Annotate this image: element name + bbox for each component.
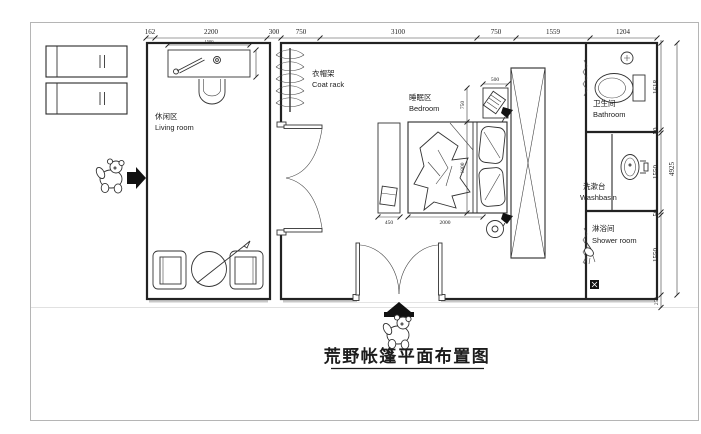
entrance-double-door [353,243,445,302]
bed-width-dim: 1800 [460,162,466,173]
door-leaf [284,229,322,233]
dim-label: 1559 [546,28,561,36]
desk-dim: 1500 [205,39,215,44]
living-room-label-zh: 休闲区 [155,111,178,121]
floor-plan-canvas: 1500 休闲区 Living room 衣帽 [0,0,701,434]
shower-label-zh: 淋浴间 [592,223,615,233]
dim-label: 1550 [652,165,660,180]
dim-label: 1550 [652,248,660,263]
door-leaf [284,125,322,129]
shower-room: 淋浴间 Shower room [583,223,637,289]
bathroom-label-en: Bathroom [593,110,626,119]
entrance-arrow-icon [127,167,146,189]
bed-length-dim: 2000 [440,220,451,226]
dim-label: 2200 [204,28,219,36]
north-arrow-icon [387,302,411,312]
pen-icon [244,241,250,248]
dim-label: 750 [491,28,502,36]
washbasin-label-en: Washbasin [580,193,617,202]
bathroom: 卫生间 Bathroom [593,52,645,119]
bear-mascot-icon [382,315,412,349]
outdoor-loungers [46,46,127,114]
door-swing-arc [360,245,399,294]
rack-dim: 500 [491,77,500,83]
dim-label: 50 [652,127,660,135]
ceiling-lamp-icon [487,221,504,238]
dim-label: 162 [145,28,156,36]
wardrobe-cross-box [511,68,545,258]
dim-label: 1204 [616,28,631,36]
washbasin-area: 洗漱台 Washbasin [580,155,648,203]
dim-label: 3100 [391,28,406,36]
door-leaf [356,243,360,295]
faucet-icon [644,163,648,171]
bench-dim: 450 [385,220,394,226]
washbasin-label-zh: 洗漱台 [583,181,606,191]
drawing-title: 荒野帐篷平面布置图 [323,346,491,366]
shower-label-en: Shower room [592,236,637,245]
door-leaf [439,243,443,295]
door-swing-arc [286,129,322,178]
side-entrance-marker [95,159,146,193]
toilet-tank [633,75,645,101]
title-block: 荒野帐篷平面布置图 [323,302,491,369]
bear-mascot-icon [95,159,125,193]
bedroom-label-en: Bedroom [409,104,439,113]
interior-double-door [276,122,322,235]
lounger [46,83,127,114]
dim-label: 750 [296,28,307,36]
door-swing-arc [286,178,322,228]
living-room: 1500 休闲区 Living room [153,39,263,289]
dim-label: 1618 [652,80,660,95]
desk-chair [199,79,225,104]
bedroom: 睡眠区 Bedroom [376,68,546,258]
bedroom-label-zh: 睡眠区 [409,93,432,102]
dim-label: 50 [652,209,660,217]
dim-label: 250 [654,297,660,306]
bathroom-label-zh: 卫生间 [593,98,616,108]
coat-rack-label-zh: 衣帽架 [312,68,335,78]
coat-rack-label-en: Coat rack [312,80,344,89]
door-swing-arc [399,245,438,294]
top-dimension-line: 162 2200 300 750 3100 750 1559 1204 [144,28,660,41]
bed-head-row-dim: 750 [460,101,466,110]
pillow [478,167,505,207]
round-table [192,252,227,287]
overall-dim-label: 4925 [668,162,676,177]
lounger [46,46,127,77]
dim-label: 300 [269,28,280,36]
coat-rack: 衣帽架 Coat rack [276,48,344,112]
living-room-label-en: Living room [155,123,194,132]
folded-blanket-icon [380,186,397,206]
